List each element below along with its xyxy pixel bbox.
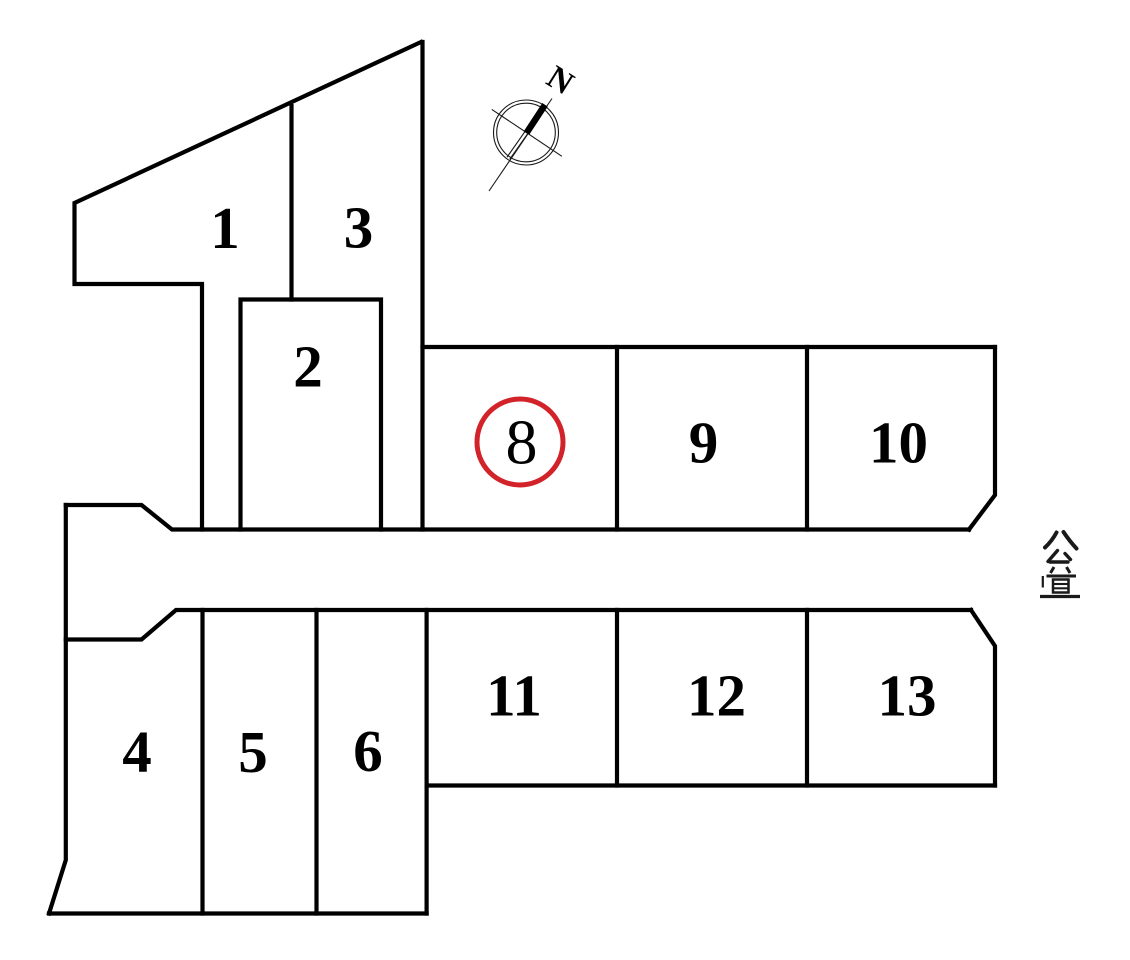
svg-text:6: 6: [353, 718, 383, 784]
svg-text:2: 2: [293, 334, 323, 400]
svg-text:3: 3: [344, 195, 374, 261]
svg-text:13: 13: [878, 663, 937, 729]
svg-text:11: 11: [486, 663, 542, 729]
svg-text:1: 1: [210, 195, 240, 261]
svg-text:4: 4: [122, 719, 152, 785]
svg-text:12: 12: [687, 663, 746, 729]
svg-text:10: 10: [869, 410, 928, 476]
svg-text:5: 5: [238, 719, 268, 785]
svg-text:8: 8: [506, 407, 538, 478]
svg-text:9: 9: [689, 410, 719, 476]
